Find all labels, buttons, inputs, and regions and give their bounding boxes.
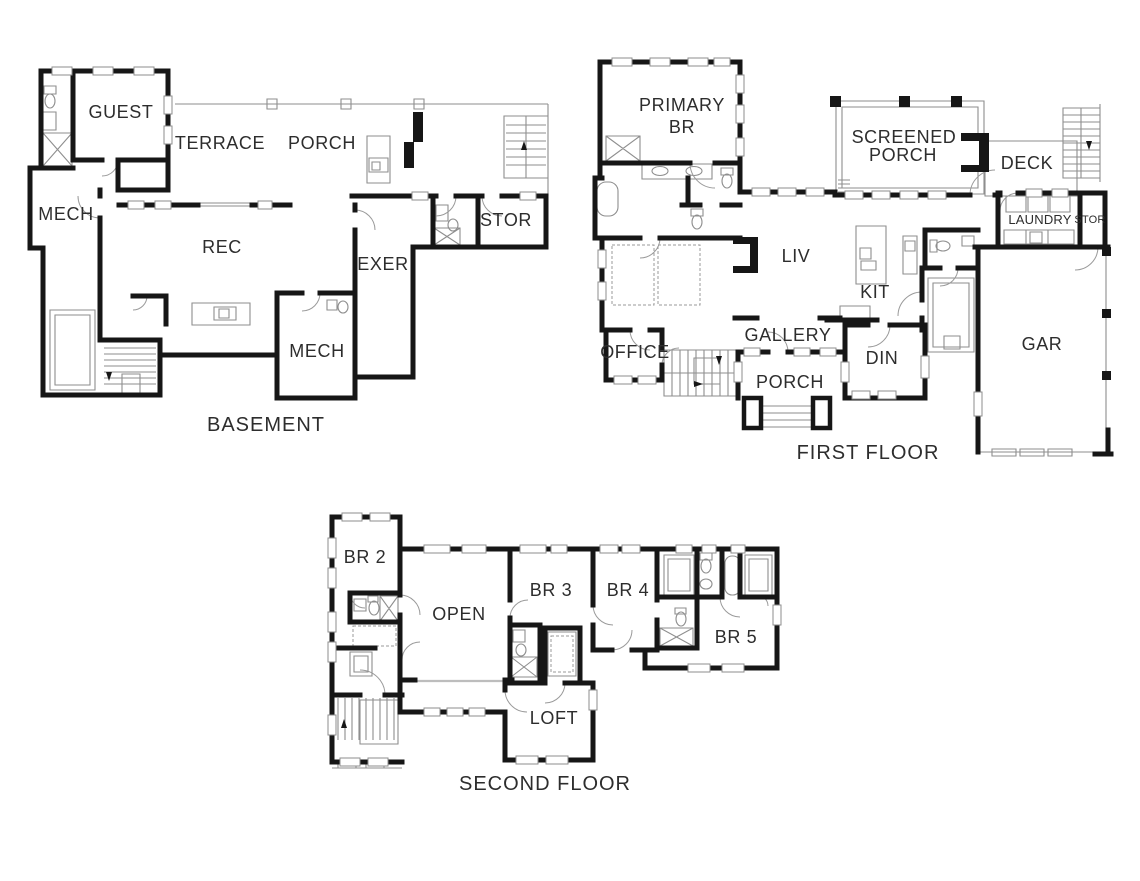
second-floor-plan: BR 2 OPEN BR 3 BR 4 BR 5 LOFT SECOND FLO… [328, 513, 781, 795]
room-label-br4: BR 4 [607, 580, 649, 600]
room-label-office: OFFICE [600, 342, 670, 362]
stair-arrow-down-icon [106, 372, 112, 381]
room-label-br3: BR 3 [530, 580, 572, 600]
room-label-mech: MECH [38, 204, 93, 224]
sink-icon [686, 167, 702, 176]
room-label-kit: KIT [860, 282, 890, 302]
room-label-stor: STOR [1074, 214, 1105, 226]
toilet-icon [338, 301, 348, 313]
plan-title-second-floor: SECOND FLOOR [459, 773, 631, 795]
toilet-icon [45, 94, 55, 108]
tub-icon [597, 182, 618, 216]
room-label-primary-br-line2: BR [669, 117, 695, 137]
room-label-liv: LIV [782, 246, 811, 266]
stair-arrow-down-icon [716, 356, 722, 365]
basement-door-arcs [78, 160, 502, 311]
toilet-icon [701, 559, 711, 573]
toilet-icon [516, 644, 526, 656]
closet-shelving [658, 245, 700, 305]
closet-shelving [551, 636, 573, 672]
basement-plan: GUEST TERRACE PORCH MECH REC EXER STOR M… [30, 67, 548, 436]
room-label-deck: DECK [1001, 153, 1053, 173]
porch-wall-jog [413, 112, 423, 142]
room-label-primary-br-line1: PRIMARY [639, 95, 725, 115]
closet-shelving [353, 626, 396, 646]
room-label-gar: GAR [1022, 334, 1063, 354]
room-label-screened-porch-line1: SCREENED [852, 127, 957, 147]
toilet-icon [936, 241, 950, 251]
toilet-icon [369, 601, 379, 615]
garage-pilaster [1102, 371, 1111, 380]
porch-post [830, 96, 841, 107]
garage-pilaster [1102, 309, 1111, 318]
sink-icon [700, 579, 712, 589]
toilet-icon [448, 219, 458, 231]
garage-pilaster [1102, 247, 1111, 256]
room-label-stor: STOR [480, 210, 532, 230]
room-label-gallery: GALLERY [745, 325, 832, 345]
room-label-br5: BR 5 [715, 627, 757, 647]
porch-post [951, 96, 962, 107]
plan-title-basement: BASEMENT [207, 414, 325, 436]
room-label-rec: REC [202, 237, 242, 257]
floor-plan-page: GUEST TERRACE PORCH MECH REC EXER STOR M… [0, 0, 1140, 881]
toilet-icon [692, 215, 702, 229]
porch-column [744, 398, 761, 428]
toilet-icon [722, 174, 732, 188]
room-label-laundry: LAUNDRY [1008, 212, 1071, 227]
porch-wall-jog [404, 142, 414, 168]
room-label-guest: GUEST [88, 102, 153, 122]
room-label-exer: EXER [357, 254, 408, 274]
porch-post [899, 96, 910, 107]
fireplace-opening [733, 244, 750, 266]
stair-arrow-down-icon [1086, 141, 1092, 150]
room-label-terrace: TERRACE [175, 133, 265, 153]
sink-icon [652, 167, 668, 176]
room-label-mech2: MECH [289, 341, 344, 361]
closet-shelving [612, 245, 654, 305]
fireplace-opening [961, 141, 979, 165]
room-label-loft: LOFT [530, 708, 578, 728]
stair-arrow-right-icon [694, 381, 703, 387]
porch-column [813, 398, 830, 428]
second-floor-door-arcs [350, 593, 768, 712]
room-label-porch: PORCH [288, 133, 356, 153]
plan-title-first-floor: FIRST FLOOR [797, 442, 940, 464]
room-label-din: DIN [866, 348, 899, 368]
floor-plan-drawing: GUEST TERRACE PORCH MECH REC EXER STOR M… [0, 0, 1140, 881]
room-label-porch: PORCH [756, 372, 824, 392]
stair-arrow-up-icon [341, 719, 347, 728]
room-label-br2: BR 2 [344, 547, 386, 567]
room-label-screened-porch-line2: PORCH [869, 145, 937, 165]
room-label-open: OPEN [432, 604, 485, 624]
first-floor-plan: PRIMARY BR SCREENED PORCH DECK LAUNDRY S… [595, 58, 1111, 464]
